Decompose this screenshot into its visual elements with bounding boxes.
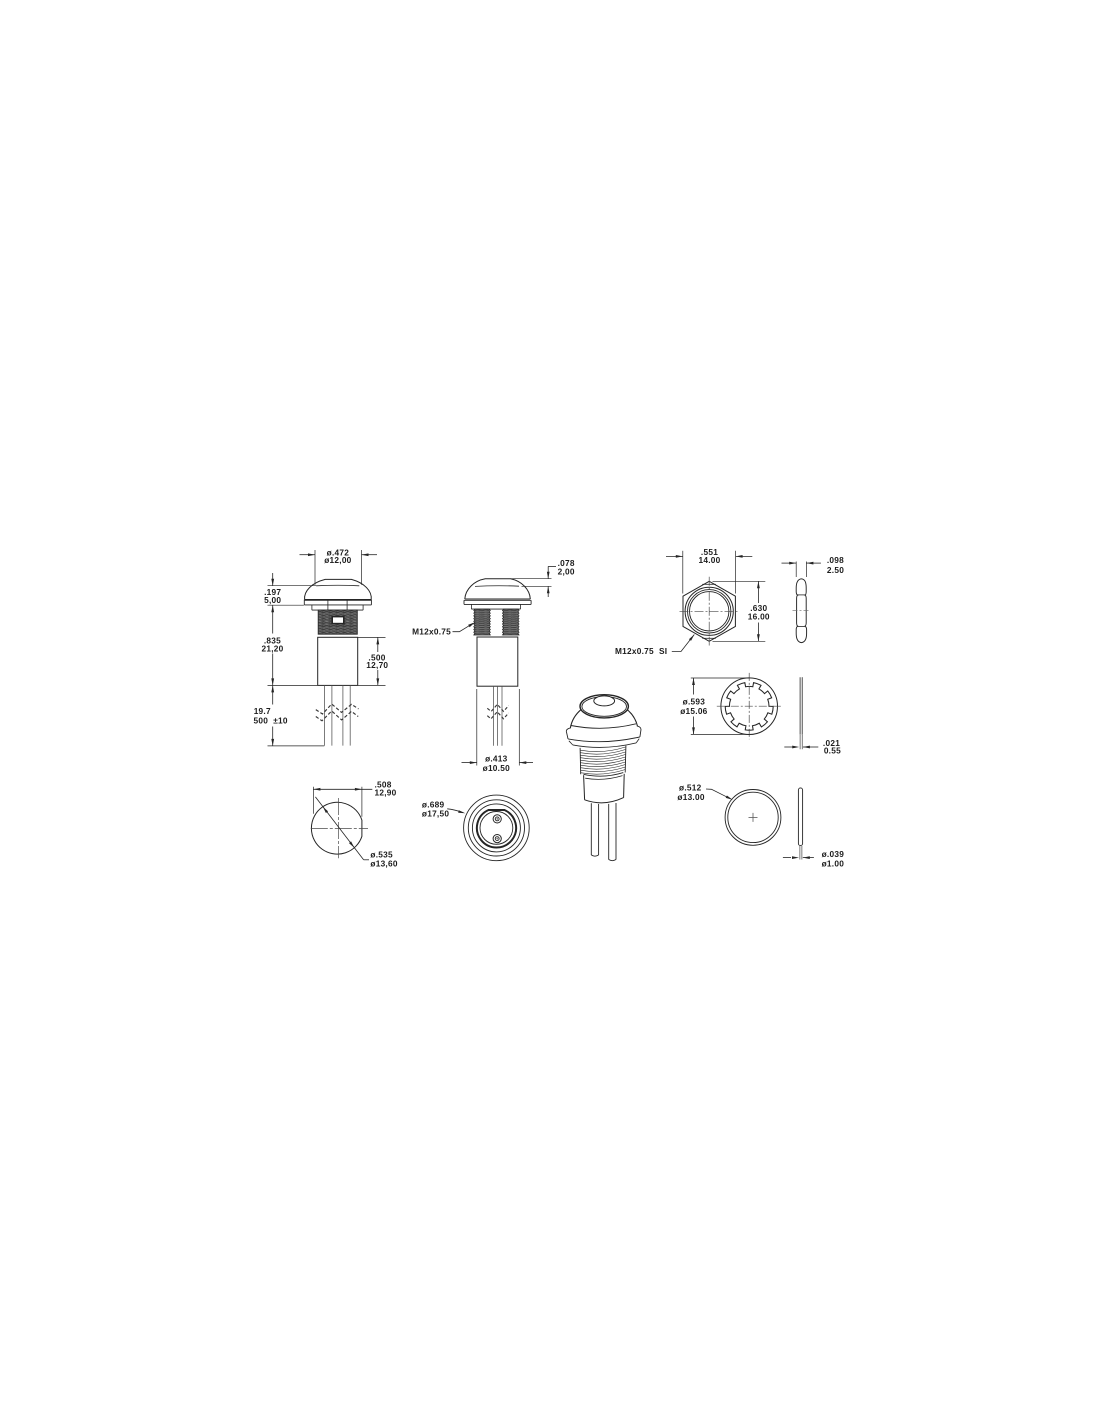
svg-text:12,70: 12,70 — [366, 660, 388, 670]
svg-text:0.55: 0.55 — [824, 746, 841, 756]
svg-text:2.50: 2.50 — [827, 565, 844, 575]
svg-text:ø15.06: ø15.06 — [680, 706, 707, 716]
svg-text:ø13.00: ø13.00 — [677, 792, 704, 802]
svg-text:14.00: 14.00 — [698, 555, 720, 565]
svg-text:.098: .098 — [827, 555, 844, 565]
svg-text:2,00: 2,00 — [558, 566, 575, 576]
svg-text:ø.512: ø.512 — [679, 782, 702, 792]
svg-text:500 ±10: 500 ±10 — [254, 716, 288, 726]
svg-text:ø10.50: ø10.50 — [483, 763, 510, 773]
svg-text:M12x0.75 SI: M12x0.75 SI — [615, 646, 667, 656]
svg-text:21,20: 21,20 — [261, 644, 283, 654]
svg-text:12,90: 12,90 — [375, 788, 397, 798]
svg-text:ø17,50: ø17,50 — [422, 808, 449, 818]
svg-text:16.00: 16.00 — [748, 612, 770, 622]
svg-text:ø.039: ø.039 — [822, 849, 845, 859]
svg-text:19.7: 19.7 — [254, 706, 271, 716]
svg-text:ø12,00: ø12,00 — [324, 555, 351, 565]
svg-text:M12x0.75: M12x0.75 — [412, 627, 451, 637]
svg-text:ø1.00: ø1.00 — [822, 858, 845, 868]
svg-text:ø13,60: ø13,60 — [370, 859, 397, 869]
svg-text:5,00: 5,00 — [264, 595, 281, 605]
